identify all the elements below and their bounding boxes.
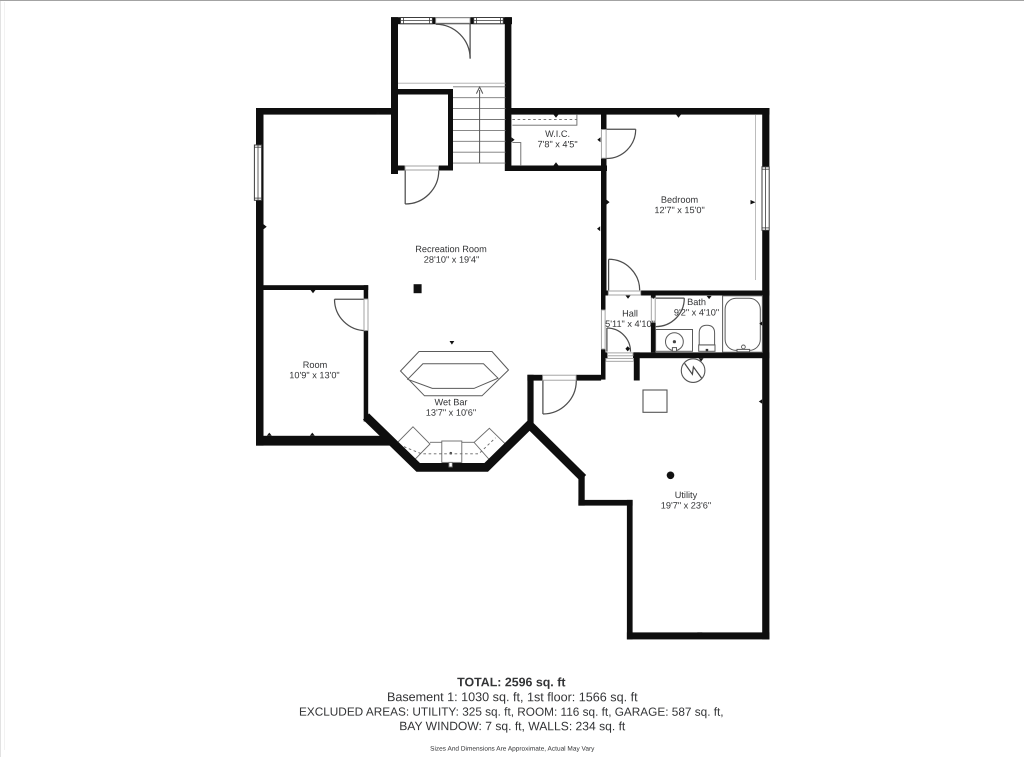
svg-text:13'7" x 10'6": 13'7" x 10'6" (426, 408, 476, 418)
svg-text:W.I.C.: W.I.C. (545, 129, 570, 139)
svg-text:EXCLUDED AREAS: UTILITY: 325 s: EXCLUDED AREAS: UTILITY: 325 sq. ft, ROO… (299, 705, 724, 719)
svg-text:Utility: Utility (675, 490, 698, 500)
svg-text:Room: Room (303, 360, 328, 370)
svg-text:10'9" x 13'0": 10'9" x 13'0" (289, 370, 339, 380)
svg-text:28'10" x 19'4": 28'10" x 19'4" (424, 255, 480, 265)
svg-text:BAY WINDOW: 7 sq. ft, WALLS: 2: BAY WINDOW: 7 sq. ft, WALLS: 234 sq. ft (399, 719, 626, 733)
svg-text:19'7" x 23'6": 19'7" x 23'6" (661, 500, 711, 510)
svg-text:Hall: Hall (622, 309, 638, 319)
svg-text:7'8" x 4'5": 7'8" x 4'5" (537, 139, 577, 149)
svg-text:9'2" x 4'10": 9'2" x 4'10" (674, 307, 719, 317)
svg-text:Recreation Room: Recreation Room (415, 244, 487, 254)
svg-text:Bedroom: Bedroom (661, 195, 699, 205)
svg-text:12'7" x 15'0": 12'7" x 15'0" (654, 205, 704, 215)
svg-text:TOTAL: 2596 sq. ft: TOTAL: 2596 sq. ft (457, 675, 565, 689)
svg-text:Sizes And Dimensions Are Appro: Sizes And Dimensions Are Approximate, Ac… (430, 746, 595, 753)
svg-text:5'11" x 4'10": 5'11" x 4'10" (605, 319, 655, 329)
svg-text:Bath: Bath (687, 297, 706, 307)
svg-text:Basement 1: 1030 sq. ft, 1st f: Basement 1: 1030 sq. ft, 1st floor: 1566… (387, 690, 638, 704)
svg-text:Wet Bar: Wet Bar (434, 397, 467, 407)
